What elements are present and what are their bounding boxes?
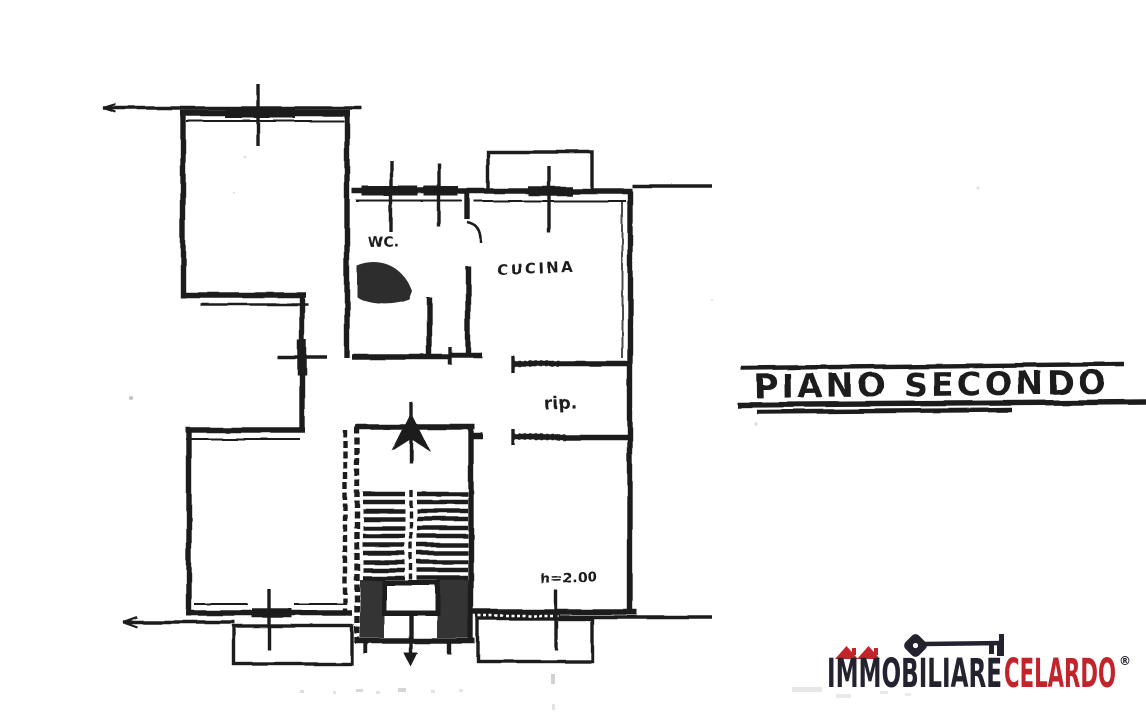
- agency-logo: IMMOBILIARE CELARDO ®: [827, 632, 1131, 697]
- brand-name-red: CELARDO: [1004, 651, 1116, 697]
- room-bottom-left-walls: [186, 430, 352, 650]
- scanned-floorplan-page: WC. CUCINA rip. h=2.00 PIANO SECONDO: [0, 0, 1146, 720]
- registered-trademark: ®: [1119, 654, 1131, 668]
- right-wall: [622, 191, 630, 613]
- room-bottom-right-walls: [472, 590, 637, 661]
- door-swing: [467, 222, 481, 243]
- floor-plan: WC. CUCINA rip. h=2.00 PIANO SECONDO: [103, 84, 1146, 667]
- room-label-storage: rip.: [543, 393, 577, 414]
- staircase: [355, 402, 483, 667]
- balcony-bottom-left: [234, 626, 352, 664]
- top-wall: [352, 152, 632, 233]
- room-label-wc: WC.: [368, 234, 399, 251]
- balcony-bottom-right: [478, 619, 592, 661]
- stair-treads-right: [417, 494, 468, 578]
- floor-plan-drawing: WC. CUCINA rip. h=2.00 PIANO SECONDO: [0, 0, 1146, 720]
- wc-door-swing: [357, 262, 412, 303]
- stair-landing: [384, 583, 438, 613]
- left-inset-wall: [277, 295, 327, 432]
- floor-title-block: PIANO SECONDO: [737, 363, 1146, 412]
- stair-treads-left: [363, 494, 405, 578]
- room-label-kitchen: CUCINA: [497, 258, 577, 279]
- room-top-left-walls: [180, 84, 350, 358]
- room-wc-walls: [352, 262, 450, 365]
- brand-name-dark: IMMOBILIARE: [827, 651, 1002, 697]
- kitchen-partition: [450, 190, 482, 356]
- balcony-top: [488, 152, 592, 189]
- floor-title: PIANO SECONDO: [754, 363, 1106, 406]
- height-annotation: h=2.00: [540, 569, 597, 588]
